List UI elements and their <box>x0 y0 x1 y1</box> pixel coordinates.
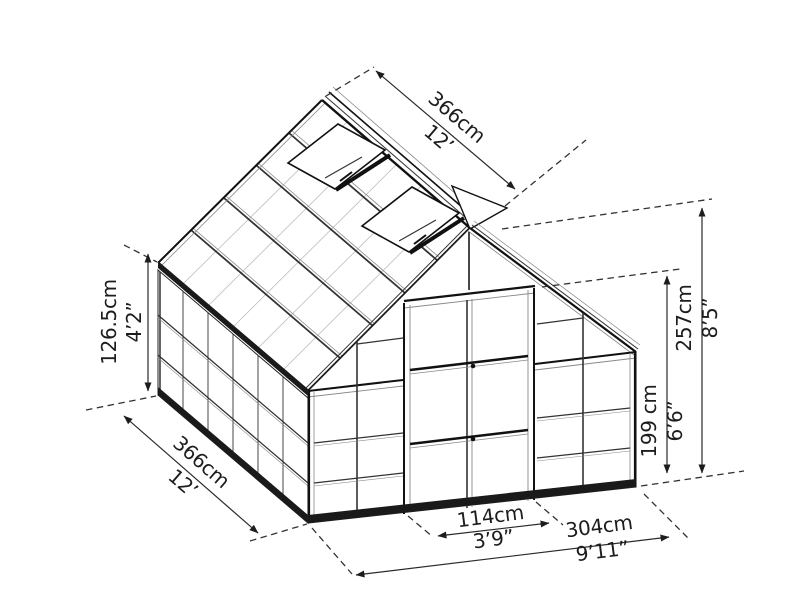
door-height-cm-label: 199 cm <box>637 384 661 457</box>
dimension-door-width: 114cm 3’9” <box>438 500 549 553</box>
wall-height-ft-label: 4’2” <box>122 302 146 343</box>
door-height-ft-label: 6’6” <box>663 401 687 442</box>
greenhouse-dimension-diagram: 366cm 12’ 126.5cm 4’2” 257cm 8’5” 199 cm… <box>0 0 800 600</box>
door-knob-upper <box>471 364 476 369</box>
diagram-svg: 366cm 12’ 126.5cm 4’2” 257cm 8’5” 199 cm… <box>0 0 800 600</box>
peak-height-ft-label: 8’5” <box>698 298 722 339</box>
wall-height-cm-label: 126.5cm <box>97 279 121 365</box>
peak-height-cm-label: 257cm <box>672 284 696 351</box>
dimension-wall-height: 126.5cm 4’2” <box>97 254 148 391</box>
door-width-ft-label: 3’9” <box>471 524 515 553</box>
door-knob-lower <box>471 437 476 442</box>
